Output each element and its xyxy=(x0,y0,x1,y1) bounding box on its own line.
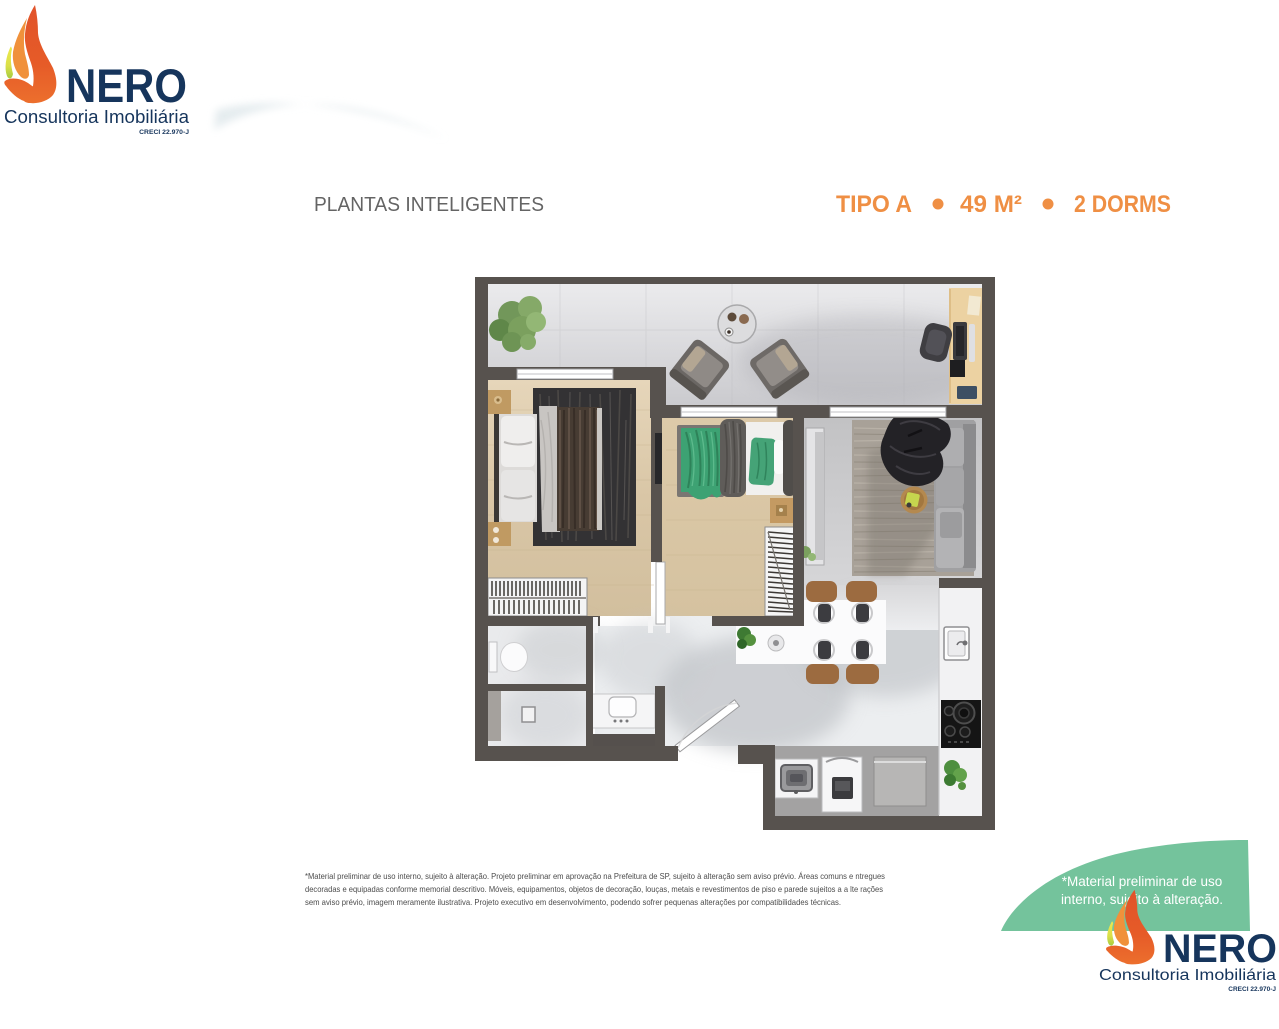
svg-text:interno, sujeito à alteração.: interno, sujeito à alteração. xyxy=(1061,892,1223,907)
svg-text:decoradas e equipadas conforme: decoradas e equipadas conforme memorial … xyxy=(305,884,883,894)
svg-text:NERO: NERO xyxy=(66,59,187,112)
svg-text:sem aviso prévio, imagem meram: sem aviso prévio, imagem meramente ilust… xyxy=(305,897,841,907)
svg-text:TIPO A: TIPO A xyxy=(836,191,912,218)
svg-text:*Material preliminar de uso: *Material preliminar de uso xyxy=(1062,874,1223,889)
svg-text:Consultoria Imobiliária: Consultoria Imobiliária xyxy=(4,106,190,127)
svg-text:NERO: NERO xyxy=(1163,927,1277,971)
svg-text:CRECI 22.970-J: CRECI 22.970-J xyxy=(139,129,189,136)
svg-text:2 DORMS: 2 DORMS xyxy=(1074,191,1171,218)
svg-text:CRECI 22.970-J: CRECI 22.970-J xyxy=(1228,986,1276,993)
svg-text:*Material preliminar de uso i: *Material preliminar de uso interno, suj… xyxy=(305,871,885,881)
svg-text:49 M²: 49 M² xyxy=(960,191,1022,218)
svg-text:Consultoria Imobiliária: Consultoria Imobiliária xyxy=(1099,967,1276,984)
svg-text:PLANTAS INTELIGENTES: PLANTAS INTELIGENTES xyxy=(314,193,544,216)
